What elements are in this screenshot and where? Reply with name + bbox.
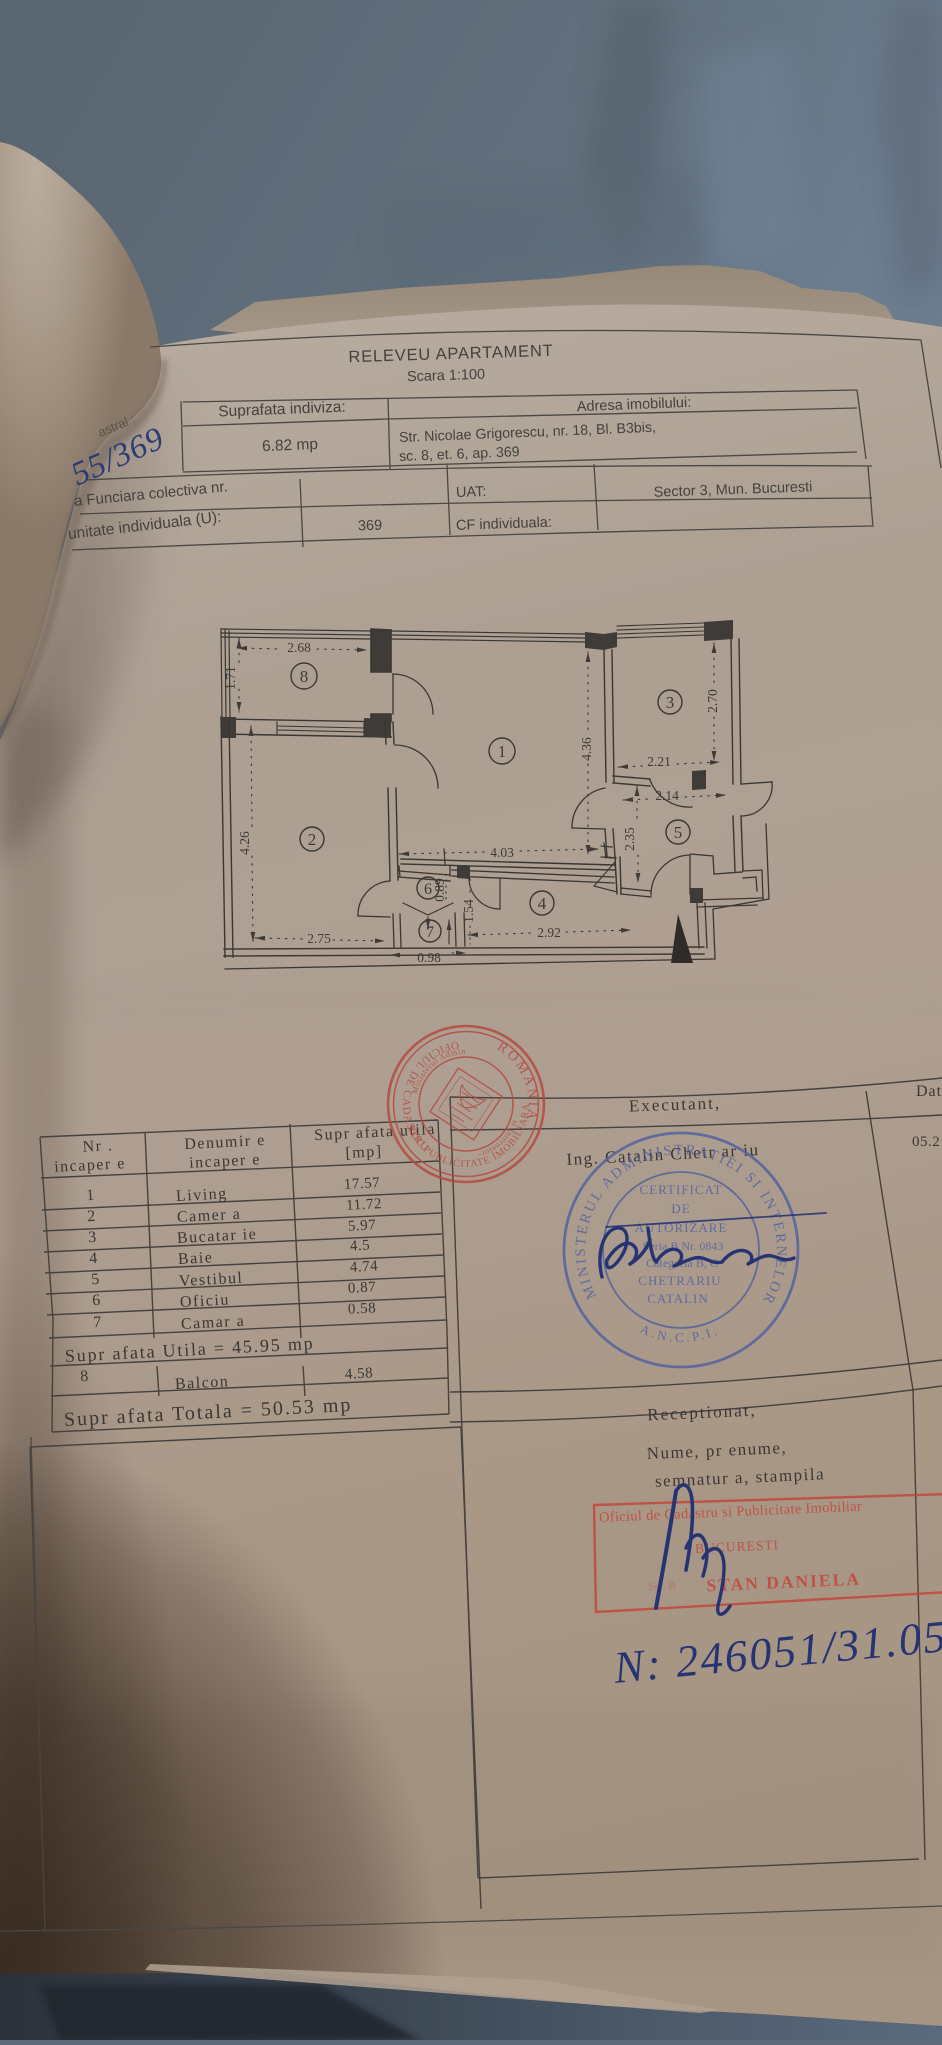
svg-text:CATALIN: CATALIN bbox=[647, 1291, 709, 1306]
svg-text:4.5: 4.5 bbox=[350, 1237, 371, 1254]
svg-text:0.58: 0.58 bbox=[348, 1300, 377, 1317]
svg-text:[mp]: [mp] bbox=[345, 1143, 383, 1162]
svg-text:3: 3 bbox=[88, 1229, 98, 1246]
svg-text:DE: DE bbox=[671, 1201, 690, 1216]
svg-text:1: 1 bbox=[498, 742, 507, 761]
svg-text:CF individuala:: CF individuala: bbox=[456, 515, 552, 534]
svg-text:5.97: 5.97 bbox=[348, 1217, 377, 1234]
svg-text:Oficiu: Oficiu bbox=[180, 1291, 231, 1311]
svg-text:Executant,: Executant, bbox=[629, 1093, 722, 1115]
svg-text:1.71: 1.71 bbox=[223, 666, 238, 690]
svg-text:4: 4 bbox=[538, 894, 547, 913]
svg-text:11.72: 11.72 bbox=[346, 1196, 382, 1214]
svg-text:Balcon: Balcon bbox=[175, 1373, 230, 1393]
svg-text:CERTIFICAT: CERTIFICAT bbox=[640, 1182, 723, 1197]
svg-text:Baie: Baie bbox=[178, 1249, 214, 1268]
svg-text:Scara 1:100: Scara 1:100 bbox=[407, 367, 486, 385]
svg-text:17.57: 17.57 bbox=[344, 1175, 381, 1193]
svg-text:5: 5 bbox=[91, 1271, 101, 1288]
svg-text:5: 5 bbox=[674, 823, 683, 842]
svg-text:4: 4 bbox=[89, 1250, 99, 1267]
svg-text:7: 7 bbox=[426, 924, 434, 941]
svg-text:Camer a: Camer a bbox=[177, 1206, 242, 1226]
svg-text:Seria B Nr. 0843: Seria B Nr. 0843 bbox=[643, 1239, 724, 1253]
svg-text:4.03: 4.03 bbox=[490, 845, 514, 860]
svg-text:4.58: 4.58 bbox=[345, 1365, 374, 1382]
svg-text:2.14: 2.14 bbox=[655, 788, 679, 803]
svg-text:3: 3 bbox=[666, 693, 675, 712]
svg-text:369: 369 bbox=[358, 518, 383, 535]
svg-text:CHETRARIU: CHETRARIU bbox=[638, 1273, 721, 1288]
svg-text:2.70: 2.70 bbox=[705, 689, 720, 713]
svg-text:8: 8 bbox=[300, 667, 309, 686]
svg-text:Nr .: Nr . bbox=[82, 1137, 114, 1156]
svg-text:UAT:: UAT: bbox=[456, 484, 487, 501]
svg-text:1: 1 bbox=[86, 1187, 96, 1204]
svg-text:2.92: 2.92 bbox=[537, 925, 561, 940]
svg-text:2: 2 bbox=[308, 830, 317, 849]
svg-text:2.35: 2.35 bbox=[622, 827, 637, 851]
svg-text:6: 6 bbox=[92, 1292, 102, 1309]
svg-text:4.74: 4.74 bbox=[350, 1258, 379, 1275]
svg-text:0.89: 0.89 bbox=[432, 878, 447, 902]
svg-text:4.36: 4.36 bbox=[579, 737, 594, 761]
svg-text:6: 6 bbox=[424, 881, 432, 898]
svg-text:4.26: 4.26 bbox=[237, 831, 252, 855]
svg-text:1.54: 1.54 bbox=[461, 899, 476, 923]
svg-text:Dat: Dat bbox=[916, 1083, 942, 1100]
svg-text:8: 8 bbox=[80, 1368, 90, 1385]
svg-text:2.21: 2.21 bbox=[647, 754, 671, 769]
svg-text:2: 2 bbox=[87, 1208, 97, 1225]
svg-text:2.75: 2.75 bbox=[307, 931, 331, 946]
svg-text:6.82 mp: 6.82 mp bbox=[262, 436, 319, 455]
svg-text:Camar a: Camar a bbox=[181, 1313, 246, 1333]
svg-text:Living: Living bbox=[176, 1185, 228, 1205]
svg-text:2.68: 2.68 bbox=[287, 640, 311, 655]
svg-text:Vestibul: Vestibul bbox=[179, 1270, 244, 1290]
svg-text:0.98: 0.98 bbox=[417, 950, 441, 965]
svg-text:05.2: 05.2 bbox=[912, 1134, 940, 1150]
svg-text:0.87: 0.87 bbox=[348, 1279, 377, 1296]
svg-text:7: 7 bbox=[93, 1314, 103, 1331]
